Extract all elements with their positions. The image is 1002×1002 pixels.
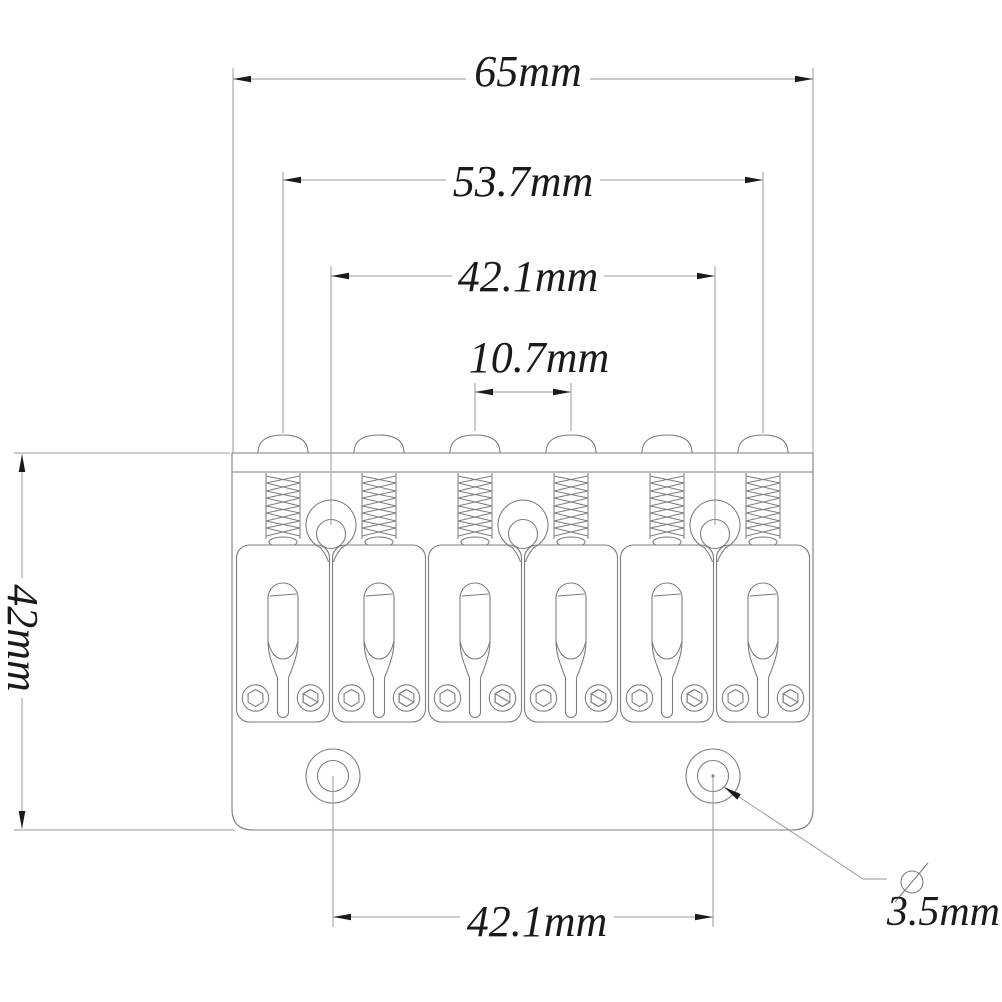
dimension-label-depth: 42mm [0,584,47,692]
dimension-42-1mm-bottom: 42.1mm [333,897,713,946]
saddles [237,435,810,722]
technical-drawing-canvas: 65mm 53.7mm 42.1mm 10.7mm 42mm 42.1mm [0,0,1002,1002]
bridge-technical-drawing: 65mm 53.7mm 42.1mm 10.7mm 42mm 42.1mm [0,0,1002,1002]
saddle-2 [333,435,426,722]
extension-lines [14,68,813,927]
saddle-3 [429,435,522,722]
dimension-label-hole-diameter: 3.5mm [886,889,1000,935]
dimension-65mm: 65mm [233,47,813,96]
dimension-label-overall-width: 65mm [474,47,582,96]
dimension-53-7mm: 53.7mm [283,157,763,206]
saddle-1 [237,435,330,722]
dimension-label-screw-spacing-bottom: 42.1mm [467,897,608,946]
saddle-6 [717,435,810,722]
dimension-label-saddle-spread: 53.7mm [453,157,594,206]
dimension-42mm-depth: 42mm [0,454,47,829]
saddle-5 [621,435,714,722]
dimension-10-7mm: 10.7mm [469,333,610,395]
hole-diameter-callout: 3.5mm [722,784,1000,935]
saddle-4 [525,435,618,722]
dimension-label-string-spacing: 10.7mm [469,333,610,382]
dimension-42-1mm-top: 42.1mm [331,252,715,301]
dimension-label-screw-spacing-top: 42.1mm [458,252,599,301]
